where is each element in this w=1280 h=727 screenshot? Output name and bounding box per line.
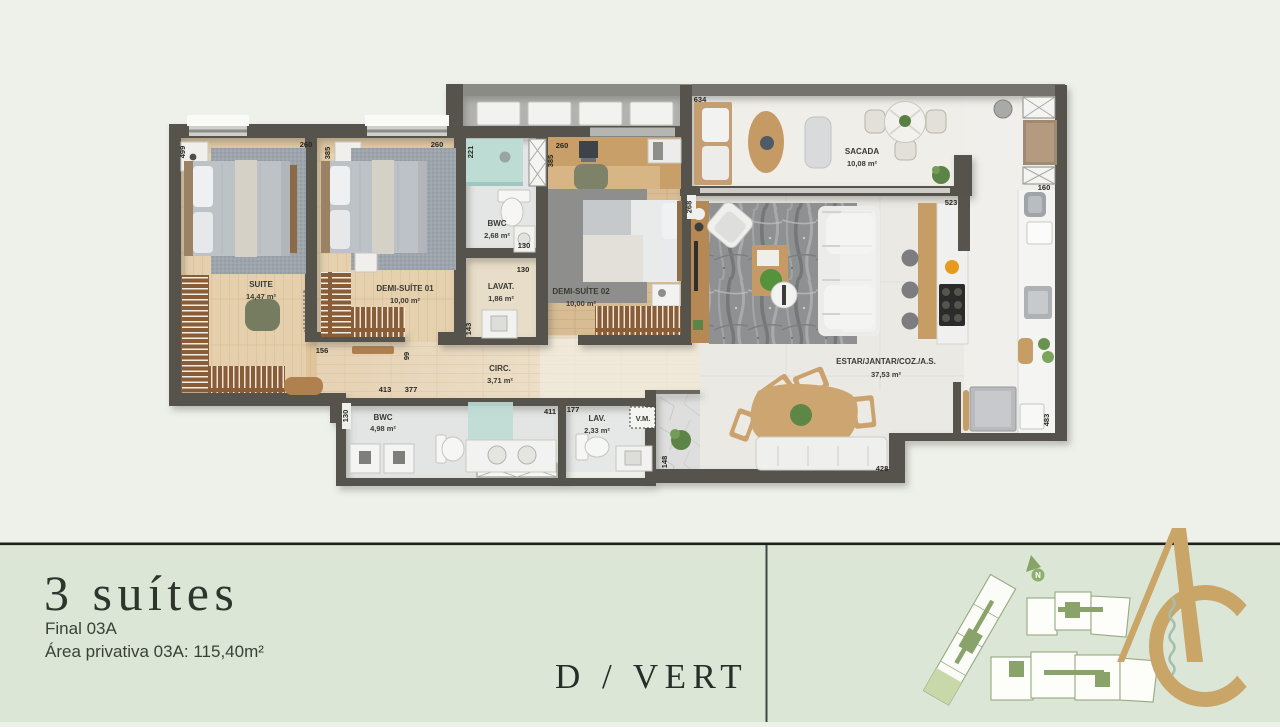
svg-text:130: 130 <box>517 265 530 274</box>
svg-text:Final 03A: Final 03A <box>45 619 117 638</box>
svg-text:CIRC.: CIRC. <box>489 364 511 373</box>
svg-text:260: 260 <box>431 140 444 149</box>
svg-text:413: 413 <box>379 385 392 394</box>
svg-text:ESTAR/JANTAR/COZ./A.S.: ESTAR/JANTAR/COZ./A.S. <box>836 357 936 366</box>
svg-text:260: 260 <box>300 140 313 149</box>
svg-text:Área privativa 03A: 115,40m²: Área privativa 03A: 115,40m² <box>45 642 264 661</box>
svg-text:37,53 m²: 37,53 m² <box>871 370 902 379</box>
svg-text:483: 483 <box>1042 414 1051 427</box>
svg-text:2,33 m²: 2,33 m² <box>584 426 610 435</box>
svg-text:523: 523 <box>945 198 958 207</box>
svg-text:411: 411 <box>544 407 556 416</box>
svg-text:N: N <box>1035 571 1041 580</box>
svg-text:634: 634 <box>694 95 707 104</box>
svg-text:385: 385 <box>546 155 555 168</box>
svg-text:4,98 m²: 4,98 m² <box>370 424 396 433</box>
svg-text:385: 385 <box>323 147 332 160</box>
svg-text:143: 143 <box>464 323 473 336</box>
svg-text:3,71 m²: 3,71 m² <box>487 376 513 385</box>
svg-text:148: 148 <box>660 456 669 469</box>
svg-text:499: 499 <box>178 146 187 159</box>
svg-text:177: 177 <box>567 405 580 414</box>
svg-text:10,00 m²: 10,00 m² <box>566 299 597 308</box>
svg-text:10,08 m²: 10,08 m² <box>847 159 878 168</box>
svg-text:221: 221 <box>466 146 475 159</box>
svg-text:156: 156 <box>316 346 329 355</box>
svg-text:160: 160 <box>1038 183 1051 192</box>
svg-text:428: 428 <box>876 464 889 473</box>
svg-text:BWC: BWC <box>373 413 392 422</box>
svg-text:130: 130 <box>341 410 350 423</box>
svg-text:2,68 m²: 2,68 m² <box>484 231 510 240</box>
svg-text:130: 130 <box>518 241 531 250</box>
svg-text:SACADA: SACADA <box>845 147 879 156</box>
svg-text:DEMI-SUÍTE 01: DEMI-SUÍTE 01 <box>376 284 434 293</box>
svg-text:LAVAT.: LAVAT. <box>488 282 514 291</box>
svg-text:SUITE: SUITE <box>249 280 273 289</box>
svg-text:DEMI-SUÍTE 02: DEMI-SUÍTE 02 <box>552 287 610 296</box>
svg-text:268: 268 <box>685 201 694 214</box>
svg-text:BWC: BWC <box>487 219 506 228</box>
svg-text:LAV.: LAV. <box>589 414 606 423</box>
svg-text:99: 99 <box>402 352 411 360</box>
svg-text:14,47 m²: 14,47 m² <box>246 292 277 301</box>
svg-text:377: 377 <box>405 385 418 394</box>
svg-text:10,00 m²: 10,00 m² <box>390 296 421 305</box>
svg-text:3 suítes: 3 suítes <box>44 565 239 621</box>
svg-text:1,86 m²: 1,86 m² <box>488 294 514 303</box>
svg-text:V.M.: V.M. <box>636 414 651 423</box>
svg-text:D / VERT: D / VERT <box>555 657 748 696</box>
svg-text:260: 260 <box>556 141 569 150</box>
